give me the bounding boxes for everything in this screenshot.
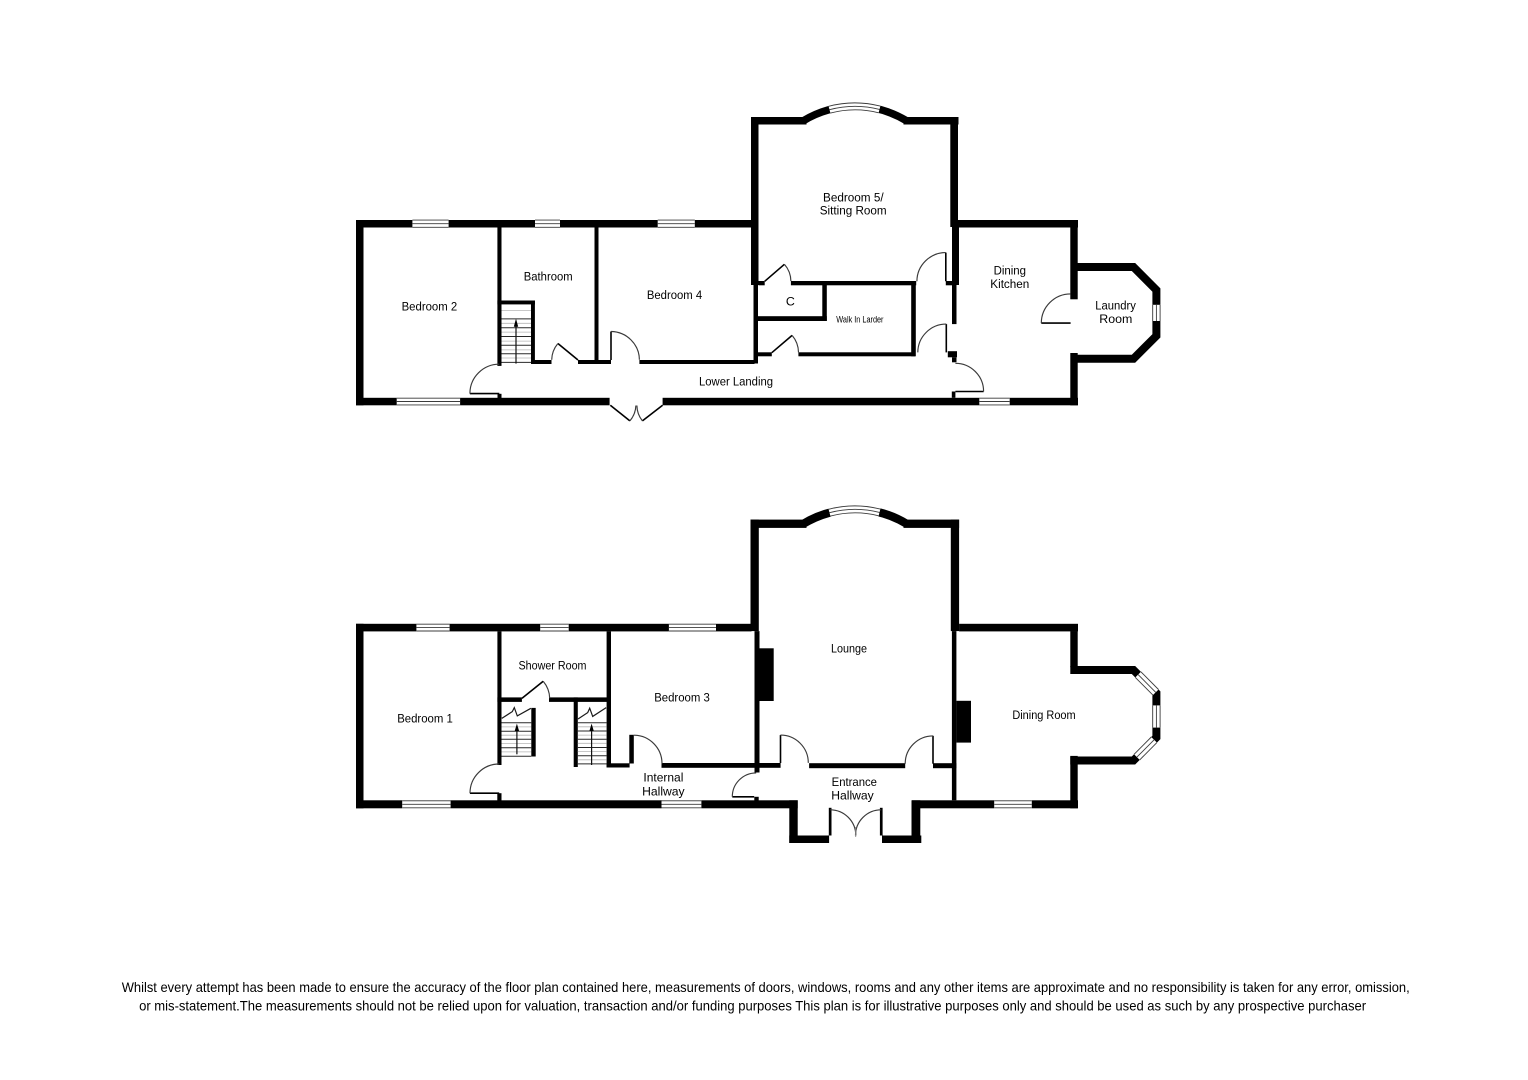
svg-text:Room: Room — [1099, 312, 1132, 326]
svg-text:Walk In Larder: Walk In Larder — [836, 315, 883, 325]
svg-text:Hallway: Hallway — [831, 789, 874, 803]
svg-text:Bedroom 4: Bedroom 4 — [647, 288, 702, 302]
svg-text:Sitting Room: Sitting Room — [820, 203, 887, 217]
svg-text:Bedroom 1: Bedroom 1 — [397, 712, 453, 726]
svg-text:Bedroom 3: Bedroom 3 — [654, 691, 710, 705]
svg-text:or mis-statement.The measureme: or mis-statement.The measurements should… — [139, 999, 1366, 1014]
svg-text:Bathroom: Bathroom — [524, 270, 573, 284]
svg-text:Shower Room: Shower Room — [519, 659, 587, 673]
svg-text:Entrance: Entrance — [832, 775, 877, 789]
svg-text:Laundry: Laundry — [1095, 299, 1136, 313]
svg-text:Kitchen: Kitchen — [990, 277, 1029, 291]
svg-text:Dining: Dining — [994, 264, 1026, 278]
svg-text:Bedroom 5/: Bedroom 5/ — [823, 191, 884, 205]
svg-text:Whilst every attempt has been: Whilst every attempt has been made to en… — [122, 980, 1410, 995]
svg-text:Bedroom 2: Bedroom 2 — [402, 299, 458, 313]
svg-text:Dining Room: Dining Room — [1012, 708, 1075, 722]
svg-text:Lounge: Lounge — [831, 642, 867, 656]
svg-text:Hallway: Hallway — [642, 784, 685, 798]
svg-text:Internal: Internal — [643, 770, 683, 784]
svg-text:C: C — [786, 294, 795, 308]
svg-text:Lower Landing: Lower Landing — [699, 375, 773, 389]
